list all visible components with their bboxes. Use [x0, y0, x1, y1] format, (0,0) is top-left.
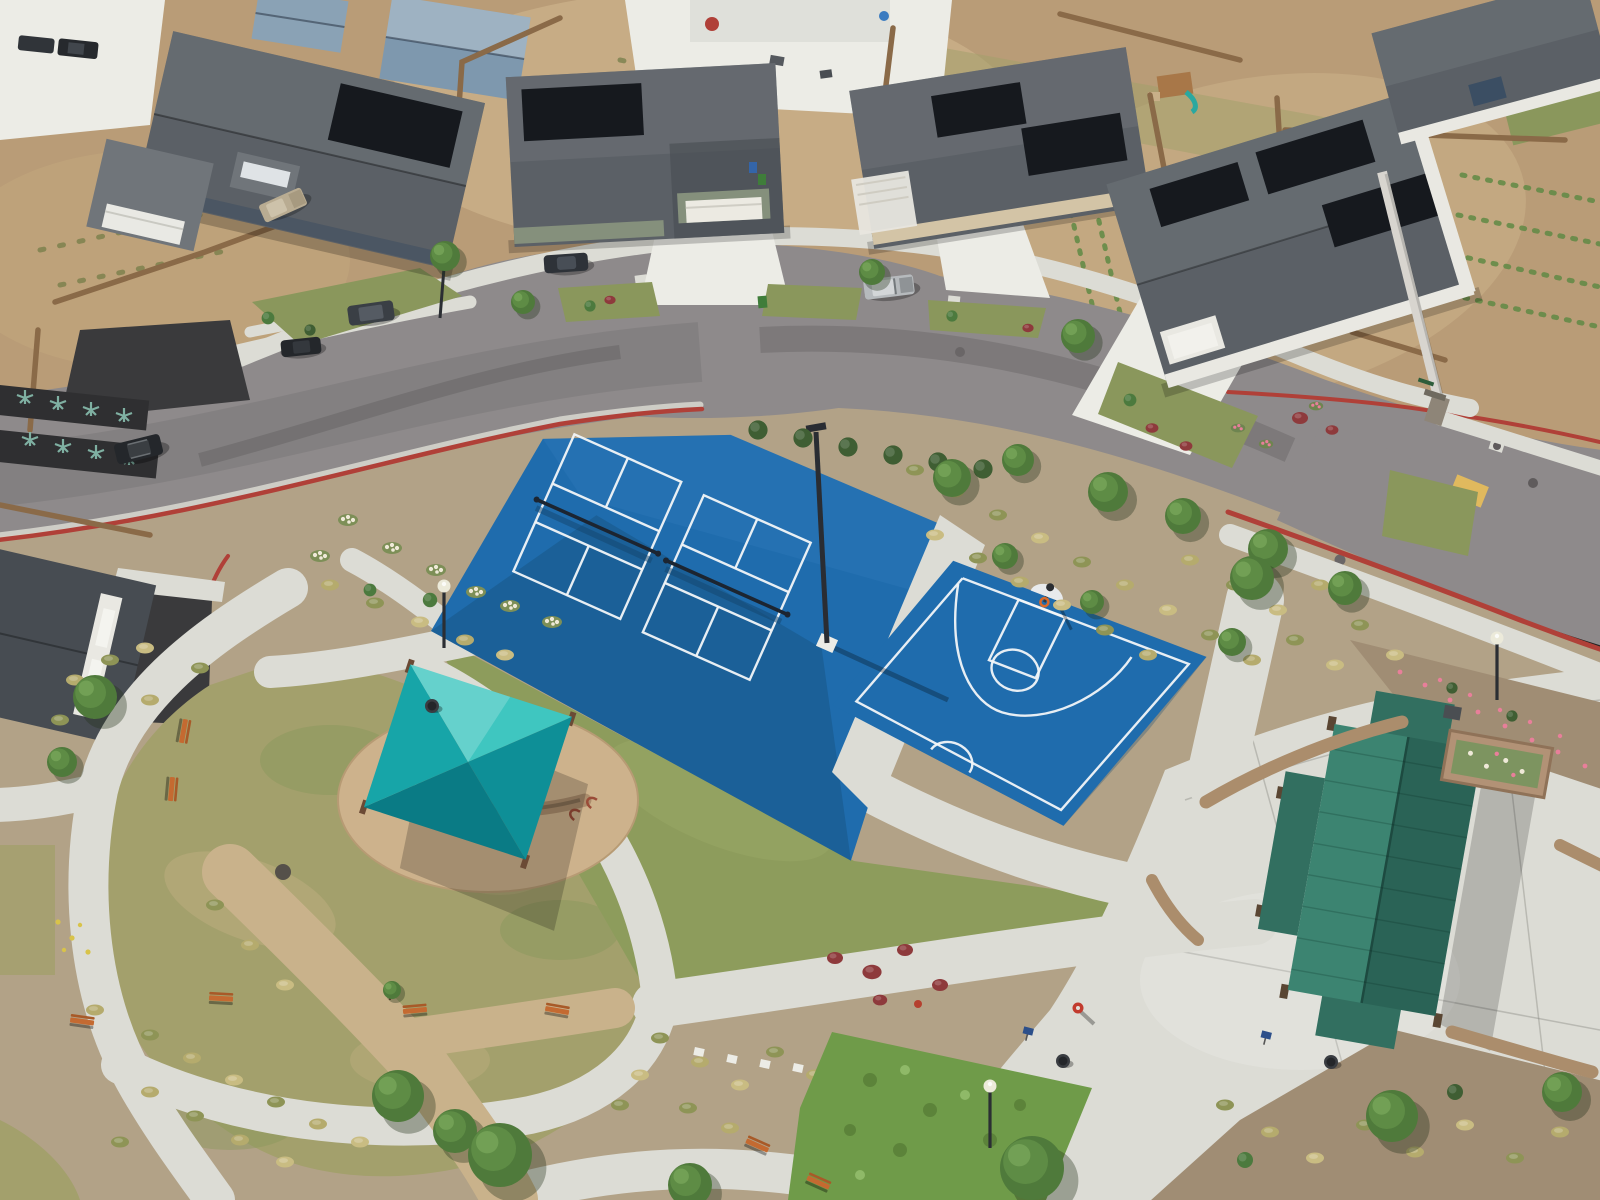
blue-recycle-bin — [749, 162, 757, 173]
park-bench — [209, 992, 234, 1005]
red-valve-marker — [914, 1000, 922, 1008]
aerial-photo-canvas — [0, 0, 1600, 1200]
corner-lot-pad — [0, 0, 165, 140]
kiddie-pool — [879, 11, 889, 21]
green-trash-bin — [757, 296, 767, 309]
green-yard-bin — [758, 174, 766, 185]
manhole-cover — [275, 864, 291, 880]
park-bench — [402, 1003, 427, 1017]
aerial-photo-figure — [0, 0, 1600, 1200]
house-center-green — [500, 63, 791, 254]
patio-umbrella — [705, 17, 719, 31]
park-bench — [164, 777, 178, 802]
garage-pergola — [851, 171, 917, 235]
rear-house-top-edge — [690, 0, 890, 42]
